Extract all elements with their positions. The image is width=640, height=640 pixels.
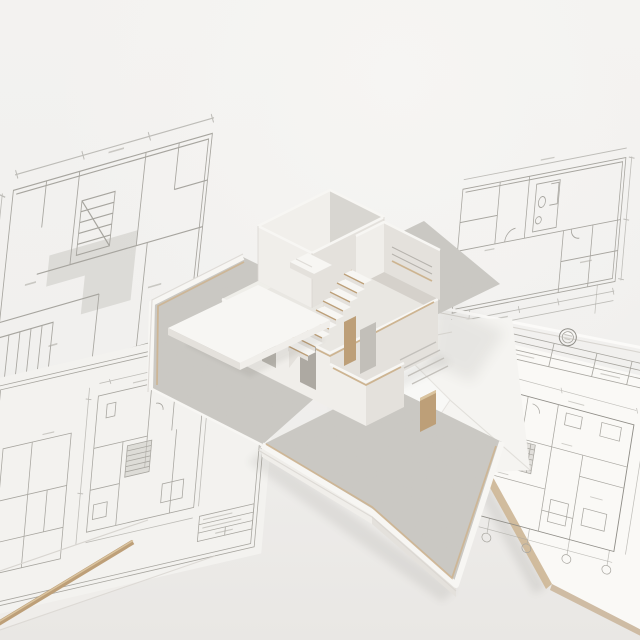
scene-canvas: White architectural scale model of a two…	[0, 0, 640, 640]
wood-door	[344, 316, 356, 366]
scene-architectural-model-photo: White architectural scale model of a two…	[0, 0, 640, 640]
